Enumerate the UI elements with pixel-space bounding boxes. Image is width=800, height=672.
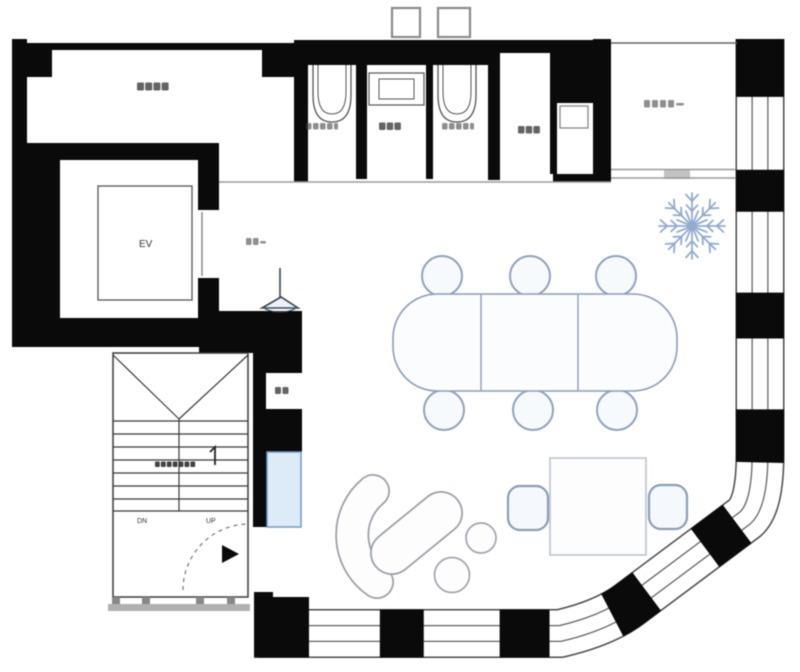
svg-text:EV: EV	[139, 239, 153, 250]
svg-text:UP: UP	[206, 518, 216, 525]
svg-text:DN: DN	[137, 518, 147, 525]
